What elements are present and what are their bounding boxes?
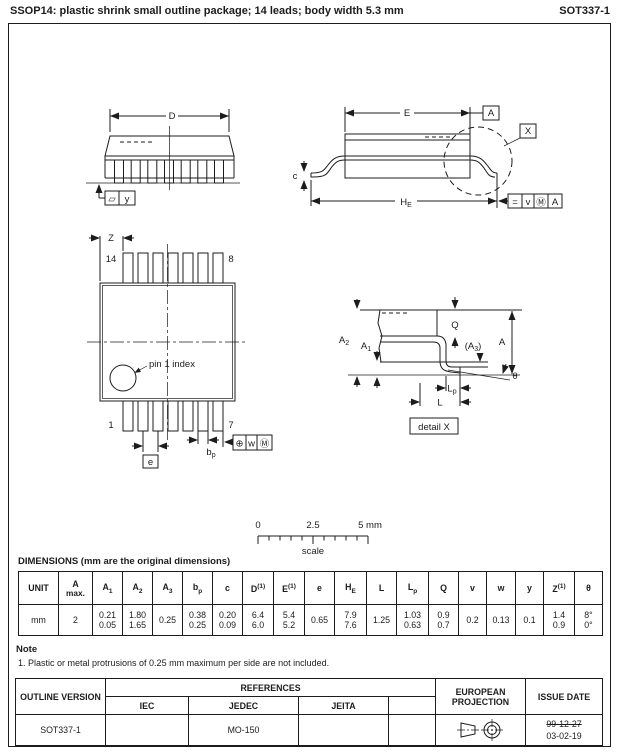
val-e-width: 5.45.2 (274, 605, 305, 636)
dim-l-label: L (437, 398, 442, 409)
dim-bp-label: bp (206, 447, 215, 459)
val-v: 0.2 (459, 605, 487, 636)
tolerance-symbol: = (512, 197, 518, 208)
col-q: Q (429, 572, 459, 605)
issue-date-header: ISSUE DATE (526, 679, 603, 715)
val-a-max: 2 (59, 605, 93, 636)
col-lp: Lp (397, 572, 429, 605)
pin-14-label: 14 (106, 254, 117, 265)
val-theta: 8°0° (575, 605, 603, 636)
dim-e-pitch-label: e (148, 457, 153, 468)
first-angle-projection-icon (455, 719, 507, 741)
dimensions-caption: DIMENSIONS (mm are the original dimensio… (18, 556, 230, 567)
val-a3: 0.25 (153, 605, 183, 636)
package-code: SOT337-1 (559, 5, 610, 17)
dimensions-value-row: mm 2 0.210.05 1.801.65 0.25 0.380.25 0.2… (19, 605, 603, 636)
val-a2: 1.801.65 (123, 605, 153, 636)
col-l: L (367, 572, 397, 605)
side-view-lines (86, 109, 240, 205)
detail-x-ref-label: X (525, 126, 532, 137)
val-c: 0.200.09 (213, 605, 243, 636)
val-a1: 0.210.05 (93, 605, 123, 636)
col-e-pitch: e (305, 572, 335, 605)
datasheet-page: SSOP14: plastic shrink small outline pac… (0, 0, 620, 753)
val-w: 0.13 (487, 605, 516, 636)
note-item: 1. Plastic or metal protrusions of 0.25 … (18, 658, 329, 668)
pin-7-label: 7 (228, 420, 233, 431)
val-bp: 0.380.25 (183, 605, 213, 636)
dimensions-header-row: UNIT Amax. A1 A2 A3 bp c D(1) E(1) e HE … (19, 572, 603, 605)
col-y: y (516, 572, 544, 605)
jeita-header: JEITA (299, 697, 389, 715)
dim-theta-label: θ (512, 371, 517, 382)
col-unit: UNIT (19, 572, 59, 605)
footer-table: OUTLINE VERSION REFERENCES EUROPEAN PROJ… (15, 678, 603, 746)
dim-c-label: c (293, 171, 298, 182)
mmc-icon: Ⓜ (536, 198, 546, 209)
jeita-value (299, 715, 389, 746)
flatness-symbol: ▱ (108, 194, 116, 205)
scale-mid-label: 2.5 (306, 520, 319, 531)
val-e-pitch: 0.65 (305, 605, 335, 636)
col-a2: A2 (123, 572, 153, 605)
dim-e-label: E (404, 108, 410, 119)
detail-x-lines (348, 297, 522, 434)
side-view-drawing: D ▱ y (82, 96, 252, 218)
references-header: REFERENCES (106, 679, 436, 697)
dim-d-label: D (169, 111, 176, 122)
datum-y-label: y (125, 194, 130, 205)
col-a3: A3 (153, 572, 183, 605)
outline-version-header: OUTLINE VERSION (16, 679, 106, 715)
val-he: 7.97.6 (335, 605, 367, 636)
issue-date-old: 99-12-27 (527, 718, 601, 730)
note-heading: Note (16, 644, 37, 655)
dim-a1-label: A1 (361, 341, 371, 353)
position-icon: ⊕ (236, 439, 244, 450)
dim-a2-label: A2 (339, 335, 349, 347)
dim-q-label: Q (451, 320, 458, 331)
issue-date-value: 99-12-27 03-02-19 (526, 715, 603, 746)
blank-header (389, 697, 436, 715)
scale-caption: scale (302, 546, 324, 557)
scale-end-label: 5 mm (358, 520, 382, 531)
top-view-lines (87, 236, 272, 468)
datum-a-label: A (488, 108, 495, 119)
col-theta: θ (575, 572, 603, 605)
val-unit: mm (19, 605, 59, 636)
scale-bar: 0 2.5 5 mm scale (246, 512, 396, 558)
page-title: SSOP14: plastic shrink small outline pac… (10, 5, 404, 17)
col-bp: bp (183, 572, 213, 605)
jedec-header: JEDEC (189, 697, 299, 715)
dim-z-label: Z (108, 233, 114, 244)
col-he: HE (335, 572, 367, 605)
col-w: w (487, 572, 516, 605)
dim-a3-label: (A3) (465, 341, 482, 353)
end-view-drawing: E A X c HE = v Ⓜ A (290, 98, 575, 220)
tolerance-value: v (526, 197, 531, 208)
val-l: 1.25 (367, 605, 397, 636)
detail-x-caption: detail X (418, 422, 450, 433)
val-lp: 1.030.63 (397, 605, 429, 636)
projection-symbol-cell (436, 715, 526, 746)
iec-header: IEC (106, 697, 189, 715)
dim-a-label: A (499, 337, 506, 348)
pin-1-label: 1 (108, 420, 113, 431)
issue-date-new: 03-02-19 (527, 730, 601, 742)
position-value: w (247, 439, 255, 450)
detail-x-drawing: A2 A1 Q (A3) A θ Lp L detail X (330, 278, 600, 440)
outline-version-value: SOT337-1 (16, 715, 106, 746)
val-d: 6.46.0 (243, 605, 274, 636)
dimensions-table: UNIT Amax. A1 A2 A3 bp c D(1) E(1) e HE … (18, 571, 603, 636)
footer-value-row: SOT337-1 MO-150 99-12-27 (16, 715, 603, 746)
col-z: Z(1) (544, 572, 575, 605)
col-c: c (213, 572, 243, 605)
scale-0-label: 0 (255, 520, 260, 531)
col-d: D(1) (243, 572, 274, 605)
pin1-index-label: pin 1 index (149, 359, 195, 370)
col-v: v (459, 572, 487, 605)
val-q: 0.90.7 (429, 605, 459, 636)
dim-he-label: HE (400, 197, 412, 209)
end-view-lines (304, 106, 562, 208)
mmc-icon: Ⓜ (260, 439, 270, 450)
col-e-width: E(1) (274, 572, 305, 605)
iec-value (106, 715, 189, 746)
footer-header-row-1: OUTLINE VERSION REFERENCES EUROPEAN PROJ… (16, 679, 603, 697)
col-a-max: Amax. (59, 572, 93, 605)
blank-value (389, 715, 436, 746)
scale-bar-lines (258, 536, 368, 544)
val-y: 0.1 (516, 605, 544, 636)
tolerance-datum: A (552, 197, 559, 208)
european-projection-header: EUROPEAN PROJECTION (436, 679, 526, 715)
pin-8-label: 8 (228, 254, 233, 265)
jedec-value: MO-150 (189, 715, 299, 746)
top-view-drawing: Z 14 8 1 7 pin 1 index e bp ⊕ w Ⓜ (85, 226, 325, 478)
dim-lp-label: Lp (447, 384, 456, 396)
col-a1: A1 (93, 572, 123, 605)
val-z: 1.40.9 (544, 605, 575, 636)
